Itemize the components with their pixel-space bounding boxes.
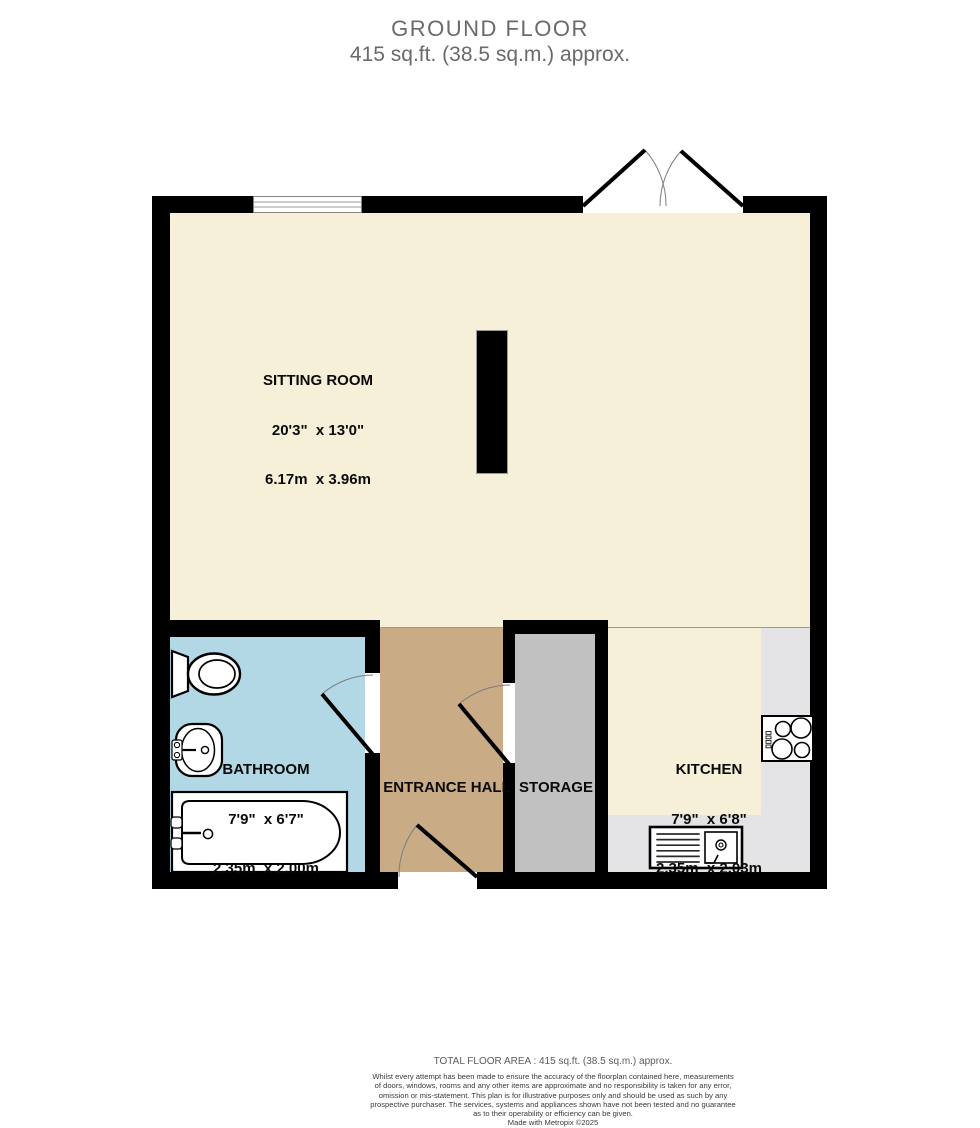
disclaimer-line: omission or mis-statement. This plan is … [278, 1091, 828, 1100]
room-name: STORAGE [519, 780, 593, 797]
french-doors-icon [583, 150, 743, 206]
disclaimer-line: Whilst every attempt has been made to en… [278, 1072, 828, 1081]
room-dims-imperial: 20'3" x 13'0" [263, 423, 373, 440]
room-dims-imperial: 7'9" x 6'7" [213, 812, 319, 829]
floorplan-page: GROUND FLOOR 415 sq.ft. (38.5 sq.m.) app… [0, 0, 980, 1128]
total-floor-area: TOTAL FLOOR AREA : 415 sq.ft. (38.5 sq.m… [278, 1056, 828, 1067]
window-icon [253, 196, 362, 213]
disclaimer: Whilst every attempt has been made to en… [278, 1072, 828, 1118]
room-label-sitting-room: SITTING ROOM 20'3" x 13'0" 6.17m x 3.96m [263, 340, 373, 522]
room-label-bathroom: BATHROOM 7'9" x 6'7" 2.35m x 2.00m [213, 729, 319, 911]
disclaimer-line: prospective purchaser. The services, sys… [278, 1100, 828, 1109]
room-name: SITTING ROOM [263, 373, 373, 390]
room-dims-metric: 2.35m x 2.03m [656, 861, 762, 878]
wall-storage-top [503, 620, 608, 634]
wall-left [152, 196, 170, 889]
wall-bathroom-right-upper [365, 620, 380, 673]
room-label-storage: STORAGE [519, 747, 593, 830]
room-label-kitchen: KITCHEN 7'9" x 6'8" 2.35m x 2.03m [656, 729, 762, 911]
room-name: ENTRANCE HALL [383, 780, 511, 797]
wall-top-mid [362, 196, 583, 213]
plan-title: GROUND FLOOR 415 sq.ft. (38.5 sq.m.) app… [0, 16, 980, 67]
chimney-breast [477, 331, 507, 473]
footer: TOTAL FLOOR AREA : 415 sq.ft. (38.5 sq.m… [278, 1056, 828, 1128]
wall-bathroom-right-lower [365, 753, 380, 872]
floor-name: GROUND FLOOR [0, 16, 980, 42]
room-name: BATHROOM [213, 762, 319, 779]
wall-right [810, 196, 827, 889]
room-name: KITCHEN [656, 762, 762, 779]
room-dims-metric: 6.17m x 3.96m [263, 472, 373, 489]
disclaimer-line: of doors, windows, rooms and any other i… [278, 1081, 828, 1090]
wall-storage-right [595, 620, 608, 872]
metropix-credit: Made with Metropix ©2025 [278, 1118, 828, 1127]
floor-area: 415 sq.ft. (38.5 sq.m.) approx. [0, 43, 980, 67]
disclaimer-line: as to their operability or efficiency ca… [278, 1109, 828, 1118]
wall-bathroom-top [152, 620, 380, 637]
room-label-entrance-hall: ENTRANCE HALL [383, 747, 511, 830]
room-dims-imperial: 7'9" x 6'8" [656, 812, 762, 829]
wall-bottom-right [477, 872, 827, 889]
wall-storage-left-upper [503, 620, 515, 683]
room-dims-metric: 2.35m x 2.00m [213, 861, 319, 878]
